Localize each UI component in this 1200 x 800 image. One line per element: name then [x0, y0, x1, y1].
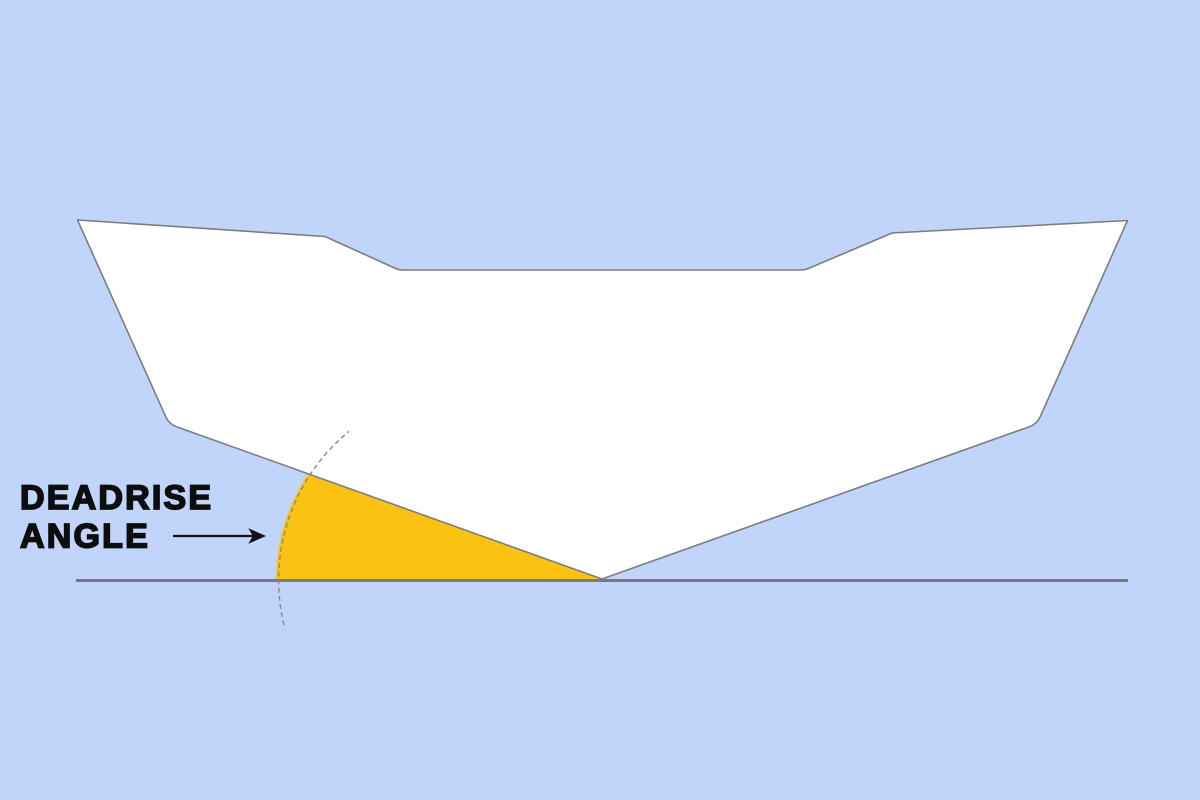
svg-text:DEADRISE: DEADRISE — [20, 479, 213, 517]
svg-text:ANGLE: ANGLE — [20, 518, 150, 556]
